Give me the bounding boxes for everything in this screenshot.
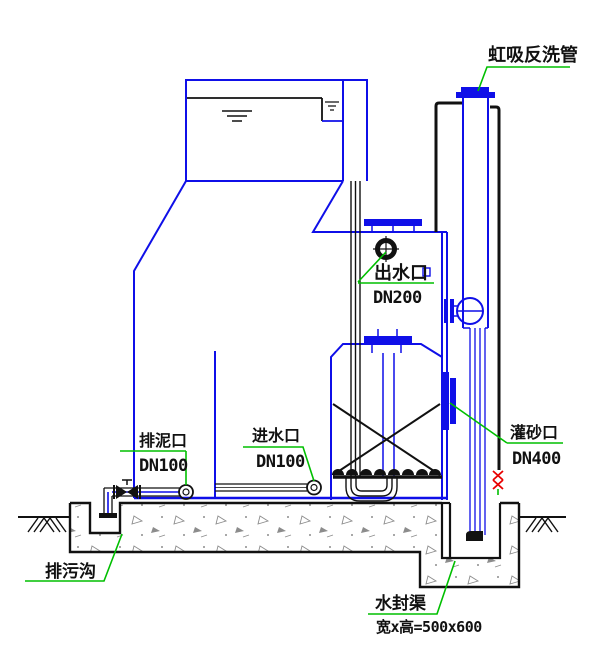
inlet-pipe [215, 481, 321, 495]
chamber-pipe-flange [364, 336, 412, 343]
siphon-top-flange [461, 87, 489, 92]
cross-bracing [333, 404, 440, 475]
wash-water-tank [186, 80, 367, 181]
label-inlet-size: DN100 [256, 452, 305, 472]
sand-fill-flange [443, 372, 456, 430]
red-drain-valve [493, 471, 503, 495]
underdrain-nozzles [332, 469, 442, 477]
label-sand-fill: 灌砂口 [510, 423, 558, 442]
label-water-seal: 水封渠 [375, 593, 427, 614]
filter-tank-section-drawing: 虹吸反洗管 出水口 DN200 排泥口 DN100 进水口 DN100 灌砂口 … [0, 0, 600, 646]
outlet-port [373, 236, 399, 262]
label-mud-drain-size: DN100 [139, 456, 188, 476]
label-inlet: 进水口 [252, 426, 300, 445]
label-water-seal-dimension: 宽x高=500x600 [375, 618, 482, 636]
top-flange [364, 219, 422, 232]
label-mud-drain: 排泥口 [139, 431, 187, 450]
label-sand-fill-size: DN400 [512, 449, 561, 469]
siphon-riser-pipes [351, 181, 360, 477]
foundation [70, 503, 519, 587]
label-outlet: 出水口 [374, 262, 428, 284]
drawing-canvas: 虹吸反洗管 出水口 DN200 排泥口 DN100 进水口 DN100 灌砂口 … [0, 0, 600, 646]
label-outlet-size: DN200 [373, 288, 422, 308]
label-siphon-backwash-pipe: 虹吸反洗管 [488, 44, 578, 66]
pipe-end-water-seal [466, 531, 483, 541]
label-sewage-ditch: 排污沟 [45, 561, 96, 582]
ground-hatch-right [520, 517, 566, 532]
ground-hatch-left [18, 517, 70, 532]
